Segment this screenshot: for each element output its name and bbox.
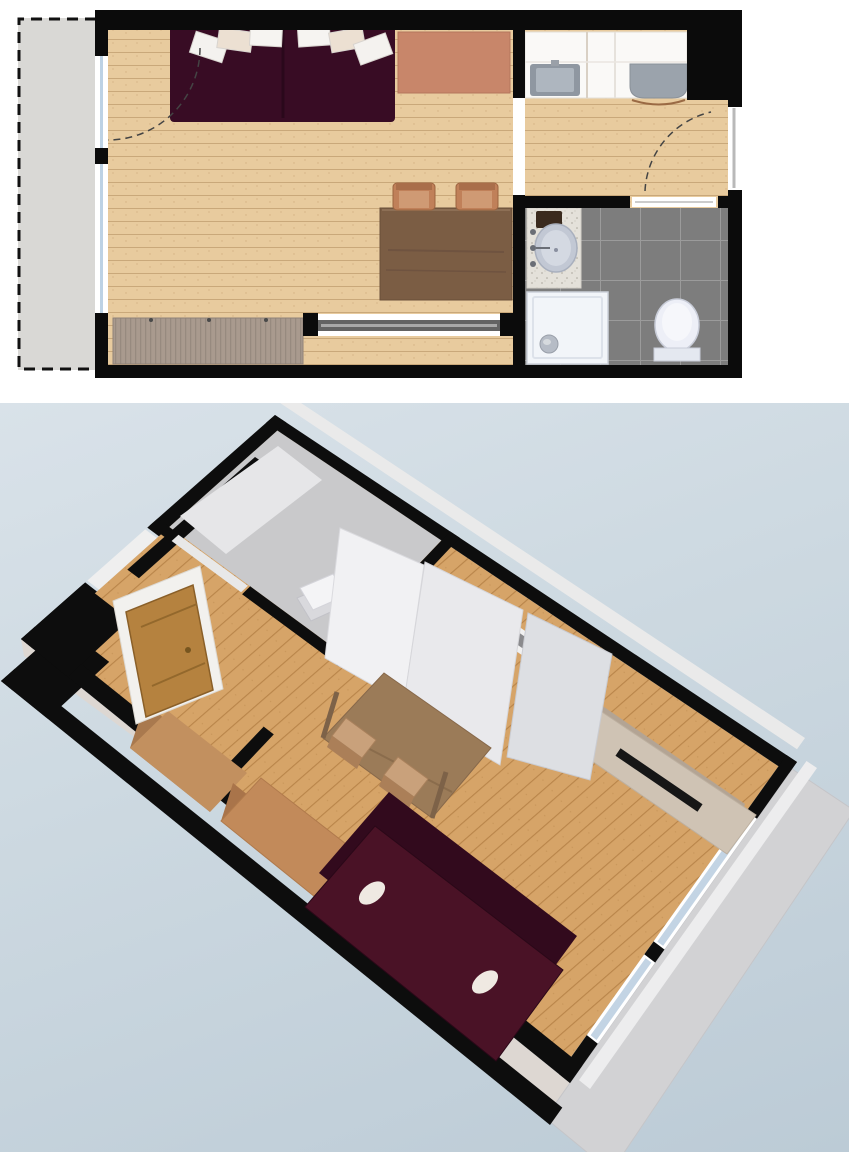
bath-sink-drain	[554, 248, 558, 252]
kitchen-appliance[interactable]	[630, 64, 687, 98]
sideboard-knob	[264, 318, 268, 322]
dining-table[interactable]	[380, 208, 512, 300]
door-cap	[728, 101, 742, 107]
door-cap	[728, 190, 742, 196]
shower-drain-highlight	[543, 339, 551, 345]
bath-tap	[530, 261, 536, 267]
sideboard[interactable]	[113, 318, 303, 364]
shower-tray[interactable]	[527, 292, 608, 364]
wall	[718, 196, 742, 208]
niche-window-line	[321, 324, 497, 327]
3d-perspective-panel	[0, 403, 849, 1152]
wall	[687, 10, 742, 100]
chair-seat	[399, 191, 429, 208]
chair-back	[459, 183, 495, 190]
bath-tap	[530, 245, 536, 251]
2d-floor-plan-panel	[0, 0, 849, 403]
2d-floor-plan-canvas	[0, 0, 849, 403]
sideboard-knob	[149, 318, 153, 322]
chair-seat	[462, 191, 492, 208]
wall	[95, 148, 108, 164]
wall	[513, 196, 630, 208]
kitchen-faucet	[551, 60, 559, 66]
wall	[513, 10, 525, 98]
window-glass	[100, 164, 103, 313]
wall	[95, 365, 742, 378]
chair-back	[396, 183, 432, 190]
wall	[513, 195, 525, 378]
wall	[728, 193, 742, 378]
3d-perspective-canvas	[0, 403, 849, 1152]
door-knob-3d	[185, 647, 191, 653]
wall	[95, 10, 742, 30]
floorplan-screenshot: { "panels": { "plan2d": { "name": "2d-fl…	[0, 0, 849, 1152]
toilet-tank	[654, 348, 700, 361]
rug[interactable]	[398, 32, 510, 93]
wall	[500, 313, 513, 336]
kitchen-sink-basin	[536, 68, 574, 92]
sideboard-knob	[207, 318, 211, 322]
wall	[303, 313, 318, 336]
bath-tap	[530, 229, 536, 235]
balcony-floor	[18, 18, 95, 370]
wall	[95, 10, 108, 56]
doorway-strip	[513, 96, 525, 196]
window-glass	[100, 56, 103, 148]
toilet-bowl-inner	[662, 303, 692, 341]
sofa-cushion	[217, 28, 253, 53]
wall	[95, 313, 108, 378]
